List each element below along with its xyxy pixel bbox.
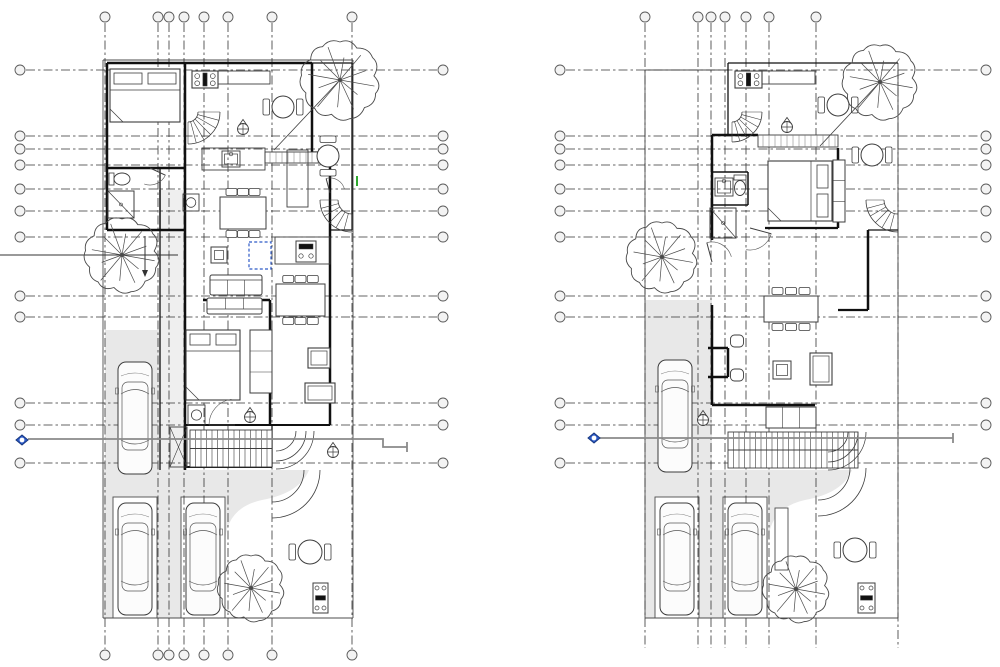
grid-bubble	[438, 458, 448, 468]
grid-bubble	[438, 65, 448, 75]
grid-bubble	[438, 160, 448, 170]
stairs	[190, 430, 272, 467]
round-table-icon	[818, 94, 858, 116]
grid-bubble	[179, 650, 189, 660]
grid-bubble	[811, 12, 821, 22]
grid-bubble	[981, 184, 991, 194]
grid-bubble	[981, 312, 991, 322]
grid-bubble	[15, 312, 25, 322]
grid-bubble	[438, 144, 448, 154]
grid-bubble	[981, 206, 991, 216]
grid-bubble	[438, 420, 448, 430]
grid-bubble	[153, 12, 163, 22]
grid-bubble	[720, 12, 730, 22]
grid-bubble	[15, 291, 25, 301]
bed-icon	[186, 330, 240, 400]
car-icon	[726, 503, 765, 615]
grid-bubble	[640, 12, 650, 22]
car-icon	[656, 360, 695, 472]
round-table-icon	[263, 96, 303, 118]
grid-bubble	[555, 131, 565, 141]
pouf-icon	[731, 335, 744, 347]
car-icon	[184, 503, 223, 615]
armchair-icon	[810, 353, 832, 385]
paving-area	[160, 190, 185, 470]
grid-bubble	[981, 458, 991, 468]
armchair-icon	[308, 348, 330, 368]
	[317, 145, 339, 167]
grid-bubble	[438, 184, 448, 194]
car-icon	[658, 503, 697, 615]
grid-bubble	[981, 291, 991, 301]
grid-bubble	[15, 131, 25, 141]
	[827, 94, 849, 116]
grid-bubble	[347, 12, 357, 22]
grid-bubble	[100, 650, 110, 660]
grid-bubble	[555, 458, 565, 468]
grid-bubble	[555, 144, 565, 154]
grid-bubble	[100, 12, 110, 22]
grid-bubble	[438, 291, 448, 301]
bed-icon	[768, 161, 832, 221]
grid-bubble	[164, 650, 174, 660]
grid-bubble	[555, 232, 565, 242]
grid-bubble	[555, 65, 565, 75]
grid-bubble	[438, 398, 448, 408]
grid-bubble	[981, 65, 991, 75]
grid-bubble	[693, 12, 703, 22]
grid-bubble	[15, 160, 25, 170]
grid-bubble	[199, 650, 209, 660]
grid-bubble	[15, 144, 25, 154]
grid-bubble	[981, 131, 991, 141]
car-icon	[116, 503, 155, 615]
grid-bubble	[15, 420, 25, 430]
grid-bubble	[15, 206, 25, 216]
grid-bubble	[15, 398, 25, 408]
armchair-icon	[305, 383, 335, 403]
grid-bubble	[438, 312, 448, 322]
wardrobe-icon	[250, 330, 272, 393]
grid-bubble	[223, 650, 233, 660]
sofa-icon	[210, 275, 262, 295]
pouf-icon	[731, 369, 744, 381]
section-marker-dot	[592, 436, 596, 440]
grid-bubble	[15, 184, 25, 194]
grid-bubble	[555, 291, 565, 301]
grid-bubble	[555, 312, 565, 322]
sofa-icon	[207, 298, 262, 314]
stove-icon	[192, 71, 218, 88]
grid-bubble	[179, 12, 189, 22]
grid-bubble	[15, 458, 25, 468]
bbq-icon	[858, 583, 875, 613]
drawing-area	[0, 0, 1000, 667]
car-icon	[116, 362, 155, 474]
grid-bubble	[555, 160, 565, 170]
grid-bubble	[764, 12, 774, 22]
section-marker-dot	[20, 438, 24, 442]
side-table-icon	[211, 247, 227, 263]
grid-bubble	[223, 12, 233, 22]
grid-bubble	[199, 12, 209, 22]
grid-bubble	[15, 232, 25, 242]
grid-bubble	[981, 420, 991, 430]
side-table-icon	[773, 361, 791, 379]
grid-bubble	[555, 420, 565, 430]
cooktop-icon	[296, 241, 316, 262]
round-table-icon	[317, 136, 339, 176]
grid-bubble	[555, 398, 565, 408]
grid-bubble	[347, 650, 357, 660]
dining-table-icon	[764, 288, 818, 331]
grid-bubble	[555, 184, 565, 194]
floor-plan-canvas	[0, 0, 1000, 667]
grid-bubble	[15, 65, 25, 75]
grid-bubble	[153, 650, 163, 660]
grid-bubble	[706, 12, 716, 22]
grid-bubble	[741, 12, 751, 22]
wardrobe-icon	[833, 160, 845, 222]
	[298, 540, 322, 564]
bed-icon	[110, 69, 180, 122]
	[272, 96, 294, 118]
grid-bubble	[438, 206, 448, 216]
stove-icon	[735, 71, 762, 88]
grid-bubble	[438, 131, 448, 141]
	[861, 144, 883, 166]
bbq-icon	[313, 583, 328, 613]
grid-bubble	[555, 206, 565, 216]
window-band	[758, 135, 838, 147]
grid-bubble	[981, 398, 991, 408]
grid-bubble	[267, 650, 277, 660]
grid-bubble	[164, 12, 174, 22]
grid-bubble	[438, 232, 448, 242]
	[843, 538, 867, 562]
grid-bubble	[267, 12, 277, 22]
round-table-icon	[852, 144, 892, 166]
wardrobe-icon	[766, 407, 816, 428]
grid-bubble	[981, 144, 991, 154]
grid-bubble	[981, 160, 991, 170]
grid-bubble	[981, 232, 991, 242]
